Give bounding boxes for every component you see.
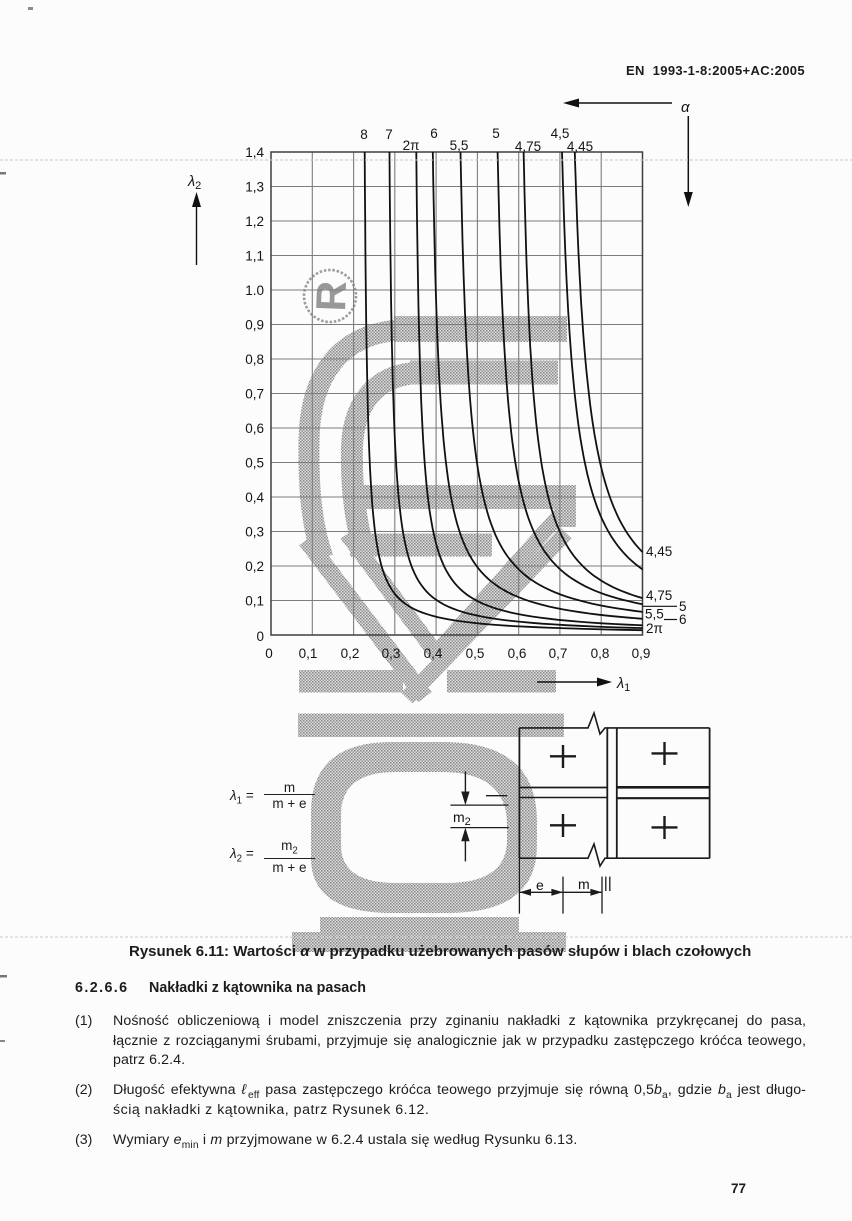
svg-text:α: α	[681, 99, 690, 116]
svg-text:1,2: 1,2	[245, 214, 264, 229]
svg-text:λ1: λ1	[616, 676, 630, 694]
svg-text:0,9: 0,9	[632, 646, 651, 661]
svg-text:5,5: 5,5	[450, 138, 469, 153]
svg-text:1,4: 1,4	[245, 145, 264, 160]
svg-text:8: 8	[360, 127, 368, 142]
svg-text:0,6: 0,6	[508, 646, 527, 661]
svg-text:0,7: 0,7	[549, 646, 568, 661]
svg-text:4,45: 4,45	[567, 139, 593, 154]
svg-text:λ2: λ2	[187, 174, 201, 192]
svg-text:0,4: 0,4	[245, 490, 264, 505]
svg-text:7: 7	[385, 127, 393, 142]
svg-text:0,2: 0,2	[341, 646, 360, 661]
svg-text:m: m	[578, 876, 590, 892]
svg-text:0,5: 0,5	[245, 456, 264, 471]
svg-text:2π: 2π	[646, 621, 663, 636]
svg-text:4,45: 4,45	[646, 544, 672, 559]
svg-text:0,1: 0,1	[299, 646, 318, 661]
svg-text:0,4: 0,4	[424, 646, 443, 661]
svg-text:1.0: 1.0	[245, 283, 264, 298]
svg-text:0: 0	[256, 629, 264, 644]
svg-text:0,3: 0,3	[245, 525, 264, 540]
svg-text:1,3: 1,3	[245, 180, 264, 195]
svg-text:0,3: 0,3	[382, 646, 401, 661]
svg-text:4,75: 4,75	[515, 139, 541, 154]
svg-text:R: R	[307, 280, 355, 312]
svg-text:6: 6	[679, 612, 687, 627]
svg-text:m2: m2	[453, 809, 471, 828]
svg-text:0,8: 0,8	[591, 646, 610, 661]
svg-text:1,1: 1,1	[245, 249, 264, 264]
svg-text:e: e	[536, 877, 544, 893]
svg-text:0,8: 0,8	[245, 352, 264, 367]
svg-text:0,7: 0,7	[245, 387, 264, 402]
svg-text:4,75: 4,75	[646, 588, 672, 603]
svg-text:5: 5	[492, 126, 500, 141]
svg-text:0,6: 0,6	[245, 421, 264, 436]
svg-text:5,5: 5,5	[645, 607, 664, 622]
svg-text:6: 6	[430, 126, 438, 141]
svg-text:0: 0	[265, 646, 273, 661]
svg-text:2π: 2π	[403, 138, 420, 153]
svg-text:0,9: 0,9	[245, 318, 264, 333]
svg-text:0,1: 0,1	[245, 594, 264, 609]
svg-text:0,2: 0,2	[245, 559, 264, 574]
svg-text:0,5: 0,5	[466, 646, 485, 661]
